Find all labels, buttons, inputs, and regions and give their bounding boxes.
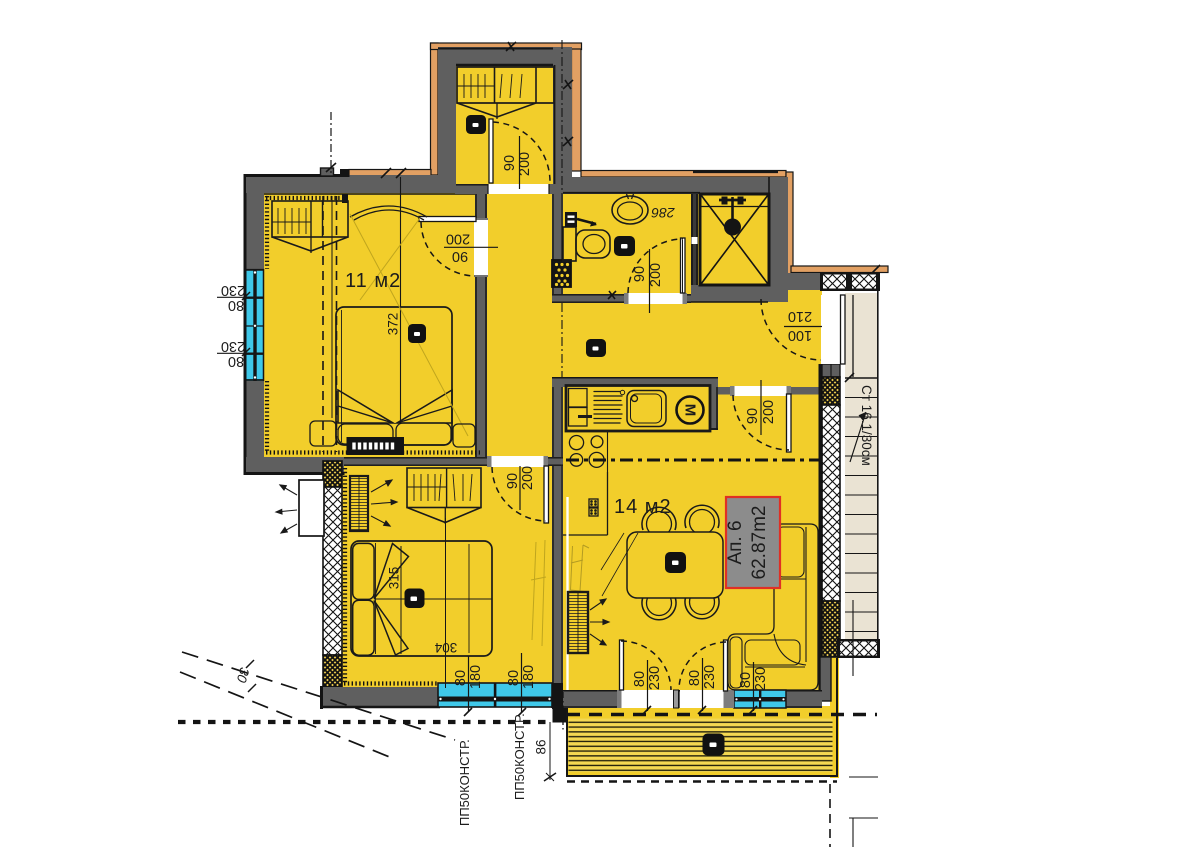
svg-text:90: 90 (505, 473, 521, 489)
svg-text:80: 80 (687, 670, 703, 686)
svg-text:315: 315 (387, 567, 402, 590)
svg-text:230: 230 (221, 282, 245, 298)
svg-text:210: 210 (788, 308, 812, 324)
svg-text:200: 200 (446, 231, 470, 247)
svg-text:100: 100 (788, 327, 812, 343)
svg-text:14 м2: 14 м2 (614, 496, 672, 518)
svg-text:230: 230 (753, 667, 769, 691)
svg-text:11 м2: 11 м2 (345, 270, 401, 292)
svg-text:200: 200 (648, 263, 664, 287)
svg-text:230: 230 (647, 666, 663, 690)
svg-text:80: 80 (738, 672, 754, 688)
svg-text:62.87m2: 62.87m2 (749, 506, 770, 580)
svg-text:Ст 16.1/30см: Ст 16.1/30см (859, 385, 874, 466)
svg-text:180: 180 (468, 665, 484, 689)
svg-text:200: 200 (761, 400, 777, 424)
svg-text:80: 80 (453, 670, 469, 686)
svg-text:230: 230 (702, 665, 718, 689)
svg-text:200: 200 (520, 466, 536, 490)
svg-text:80: 80 (632, 671, 648, 687)
svg-text:304: 304 (434, 640, 457, 655)
svg-text:90: 90 (745, 408, 761, 424)
svg-text:ПП50КОНСТР.: ПП50КОНСТР. (457, 739, 472, 826)
svg-text:ПП50КОНСТР.: ПП50КОНСТР. (512, 713, 527, 800)
svg-text:230: 230 (221, 338, 245, 354)
svg-text:90: 90 (632, 266, 648, 282)
svg-text:M: M (682, 404, 699, 417)
svg-text:90: 90 (452, 248, 468, 264)
svg-text:Ап. 6: Ап. 6 (725, 520, 746, 564)
svg-text:372: 372 (386, 313, 401, 336)
svg-text:286: 286 (651, 205, 676, 221)
svg-text:86: 86 (534, 739, 549, 754)
svg-text:180: 180 (521, 665, 537, 689)
svg-text:90: 90 (502, 155, 518, 171)
svg-text:80: 80 (506, 670, 522, 686)
